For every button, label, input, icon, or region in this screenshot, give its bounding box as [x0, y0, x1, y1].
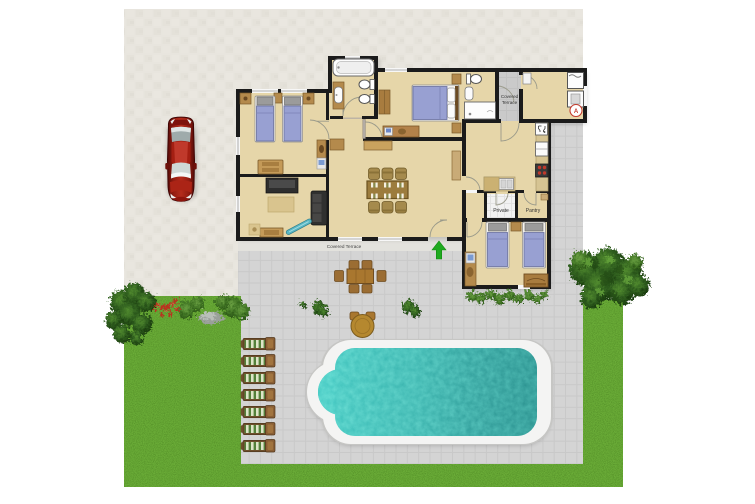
svg-text:Private: Private [493, 208, 509, 214]
svg-text:Covered Terrace: Covered Terrace [327, 244, 362, 249]
svg-text:Terrace: Terrace [502, 100, 518, 105]
svg-text:Covered: Covered [501, 94, 519, 99]
svg-text:A: A [574, 109, 579, 115]
svg-text:Pantry: Pantry [526, 208, 541, 214]
